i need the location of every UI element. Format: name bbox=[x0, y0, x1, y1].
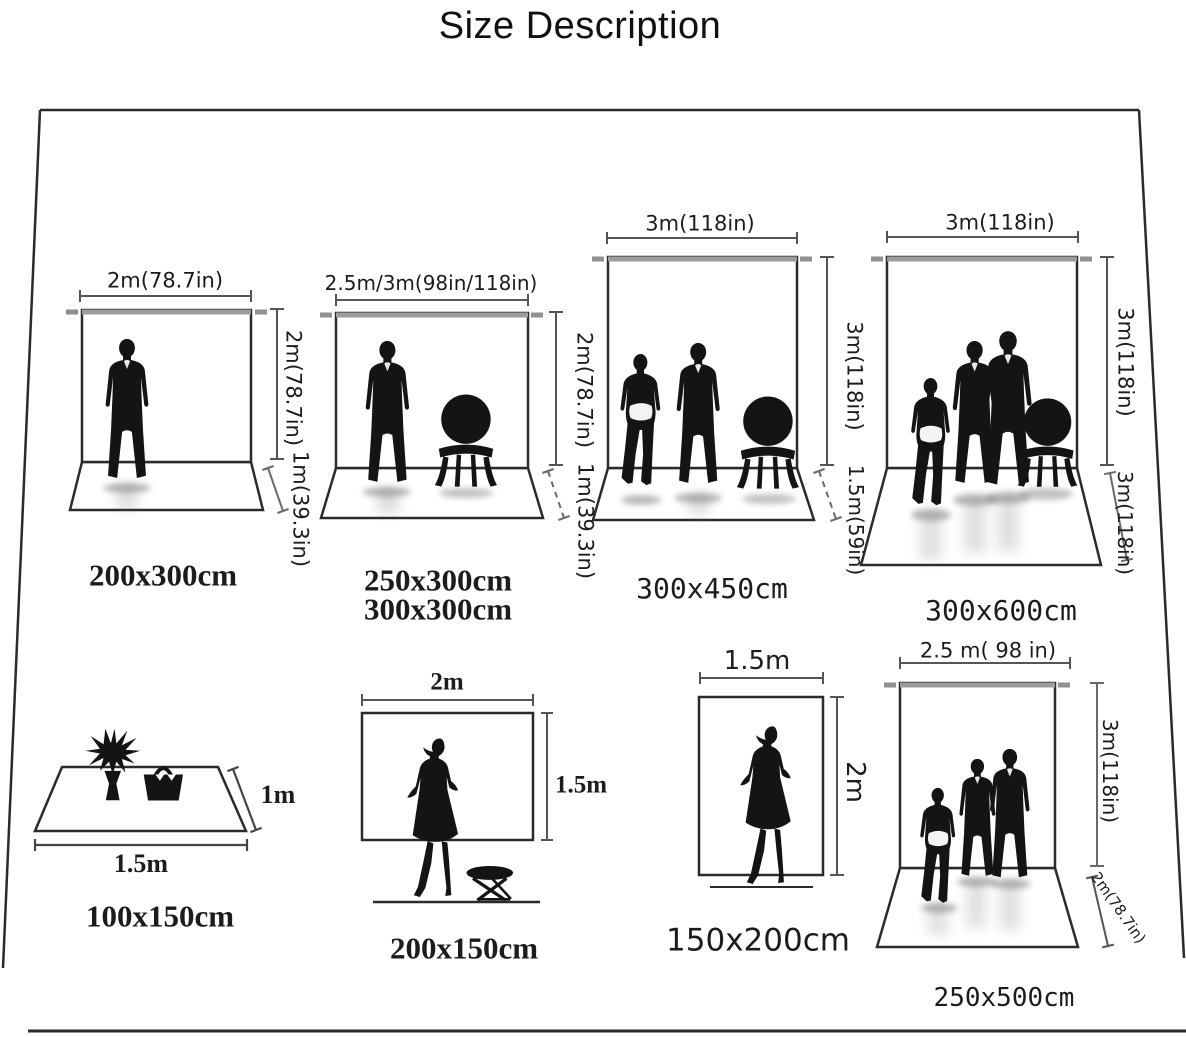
d2-height-label: 2m(78.7in) bbox=[574, 332, 595, 448]
d2-width-label: 2.5m/3m(98in/118in) bbox=[325, 273, 538, 293]
diagram-200x300 bbox=[66, 290, 289, 513]
d8-size-label: 250x500cm bbox=[934, 985, 1075, 1011]
d4-floor-label: 3m(118in) bbox=[1115, 471, 1135, 575]
d1-height-label: 2m(78.7in) bbox=[283, 330, 304, 446]
d5-depth-label: 1m bbox=[261, 782, 296, 808]
diagram-250x300-300x300 bbox=[320, 294, 570, 520]
d1-floor-label: 1m(39.3in) bbox=[290, 451, 311, 567]
d4-width-label: 3m(118in) bbox=[945, 213, 1054, 234]
d3-floor-label: 1.5m(59in) bbox=[846, 465, 866, 576]
d7-size-label: 150x200cm bbox=[666, 926, 850, 957]
diagram-150x200 bbox=[699, 672, 844, 887]
d1-size-label: 200x300cm bbox=[89, 560, 237, 591]
diagram-200x150 bbox=[362, 694, 553, 902]
folding-stool-silhouette bbox=[466, 866, 513, 900]
d6-width-label: 2m bbox=[430, 670, 463, 695]
d3-width-label: 3m(118in) bbox=[645, 214, 754, 235]
d7-width-label: 1.5m bbox=[724, 648, 791, 674]
d2-size-label-2: 300x300cm bbox=[364, 594, 512, 625]
diagram-250x500 bbox=[877, 657, 1114, 947]
d4-height-label: 3m(118in) bbox=[1115, 307, 1136, 416]
diagram-300x600 bbox=[861, 231, 1133, 565]
d8-width-label: 2.5 m( 98 in) bbox=[920, 641, 1056, 662]
diagram-100x150 bbox=[35, 729, 262, 851]
d5-width-label: 1.5m bbox=[114, 851, 168, 877]
d3-size-label: 300x450cm bbox=[636, 575, 788, 603]
diagram-300x450 bbox=[592, 232, 842, 521]
d6-height-label: 1.5m bbox=[555, 773, 607, 798]
d6-size-label: 200x150cm bbox=[390, 933, 538, 964]
d1-width-label: 2m(78.7in) bbox=[107, 271, 223, 292]
d2-floor-label: 1m(39.3in) bbox=[575, 463, 596, 579]
d5-size-label: 100x150cm bbox=[86, 901, 234, 932]
d4-size-label: 300x600cm bbox=[925, 597, 1077, 625]
page-title: Size Description bbox=[439, 7, 722, 45]
size-description-chart: Size Description 2m(78.7in) 2m(78.7in) 1… bbox=[0, 0, 1186, 1037]
d8-height-label: 3m(118in) bbox=[1100, 719, 1120, 823]
d7-height-label: 2m bbox=[842, 761, 868, 803]
d3-height-label: 3m(118in) bbox=[844, 321, 865, 430]
